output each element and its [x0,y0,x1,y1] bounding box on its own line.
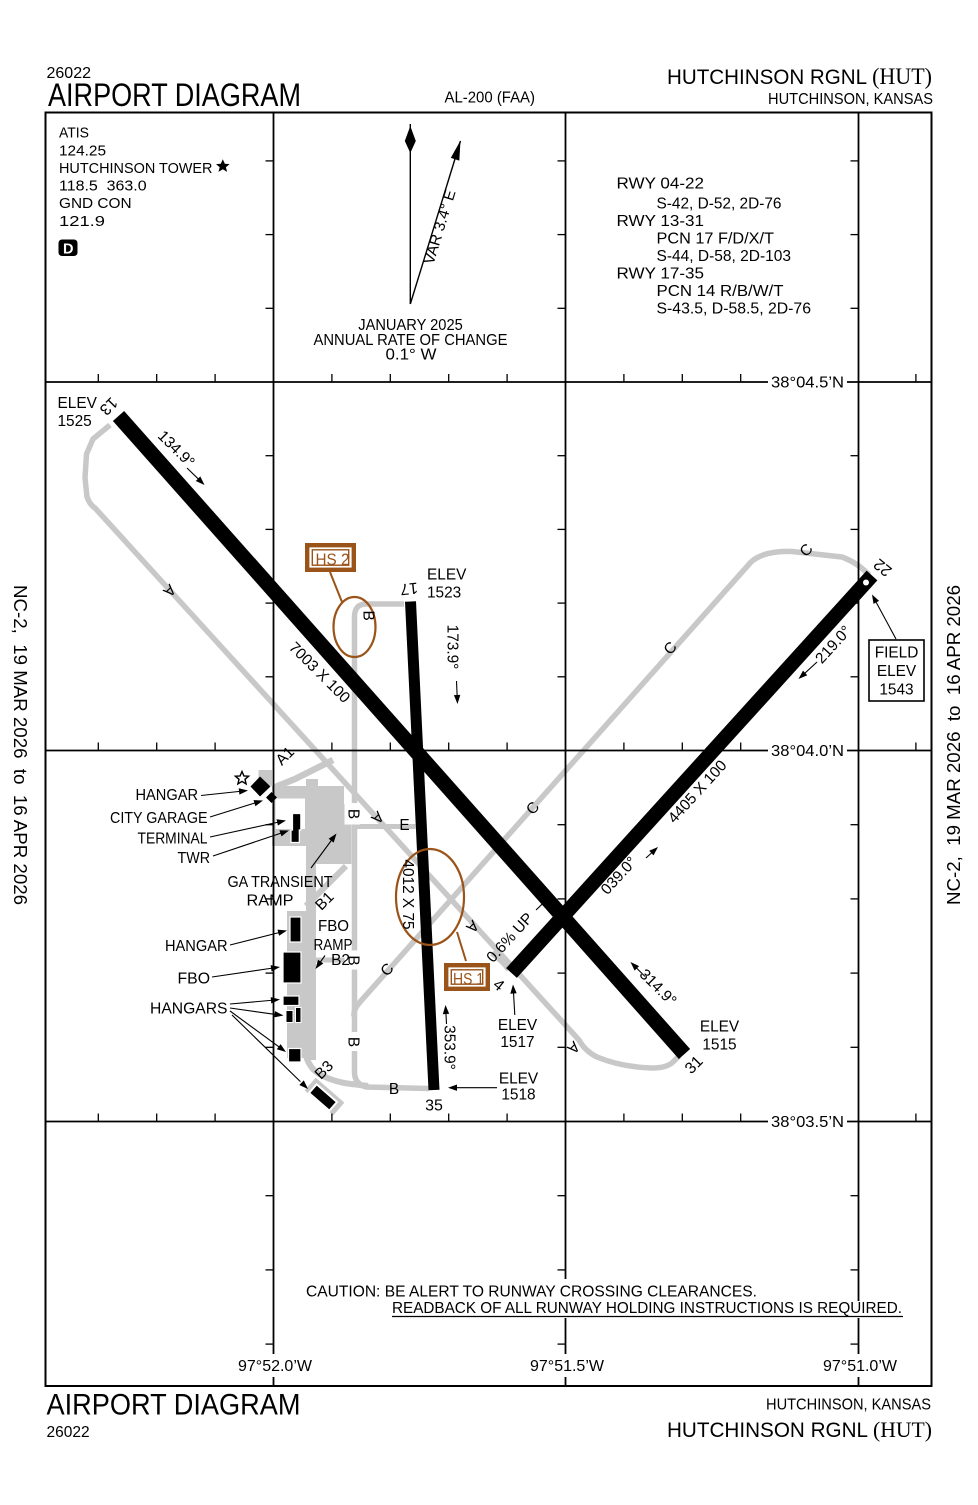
svg-text:S-42, D-52, 2D-76: S-42, D-52, 2D-76 [657,196,782,213]
svg-text:38°03.5’N: 38°03.5’N [771,1114,844,1131]
svg-text:B: B [389,1081,399,1098]
svg-text:HANGARS: HANGARS [150,1001,228,1018]
svg-text:124.25: 124.25 [59,142,106,159]
svg-text:97°52.0’W: 97°52.0’W [238,1358,312,1375]
svg-text:AIRPORT DIAGRAM: AIRPORT DIAGRAM [48,77,301,113]
svg-text:RAMP: RAMP [314,937,353,954]
svg-text:17: 17 [399,579,419,598]
svg-text:NC-2, 19 MAR 2026 to 16 APR: NC-2, 19 MAR 2026 to 16 APR 2026 [943,585,964,905]
svg-text:HUTCHINSON RGNL (HUT): HUTCHINSON RGNL (HUT) [667,64,932,89]
svg-text:1523: 1523 [427,585,461,602]
svg-text:B2: B2 [331,952,350,969]
svg-text:RWY 04-22: RWY 04-22 [617,176,705,193]
svg-text:HUTCHINSON, KANSAS: HUTCHINSON, KANSAS [766,1397,931,1414]
svg-text:121.9: 121.9 [59,213,105,230]
svg-text:ELEV: ELEV [58,395,98,412]
svg-text:TERMINAL: TERMINAL [138,831,208,848]
svg-text:1517: 1517 [500,1034,534,1051]
svg-text:GND CON: GND CON [59,195,132,212]
svg-text:READBACK OF ALL RUNWAY HOLDING: READBACK OF ALL RUNWAY HOLDING INSTRUCTI… [392,1300,902,1317]
svg-text:B: B [344,1037,361,1047]
svg-text:97°51.0’W: 97°51.0’W [823,1358,897,1375]
svg-text:B: B [344,809,361,819]
svg-text:CITY GARAGE: CITY GARAGE [110,810,208,827]
svg-text:0.1° W: 0.1° W [386,347,437,364]
svg-text:173.9°: 173.9° [444,625,461,670]
svg-text:HUTCHINSON TOWER: HUTCHINSON TOWER [59,160,213,177]
svg-text:1525: 1525 [58,413,92,430]
svg-text:PCN 14 R/B/W/T: PCN 14 R/B/W/T [657,283,785,300]
svg-text:ELEV: ELEV [427,567,467,584]
svg-text:35: 35 [425,1098,443,1115]
svg-text:S-43.5, D-58.5, 2D-76: S-43.5, D-58.5, 2D-76 [657,301,812,318]
svg-text:ELEV: ELEV [498,1017,538,1034]
svg-text:FBO: FBO [318,918,349,935]
svg-text:1515: 1515 [702,1037,736,1054]
svg-text:PCN 17 F/D/X/T: PCN 17 F/D/X/T [657,231,775,248]
svg-text:S-44, D-58, 2D-103: S-44, D-58, 2D-103 [657,248,792,265]
svg-text:HUTCHINSON, KANSAS: HUTCHINSON, KANSAS [768,91,933,108]
svg-text:ATIS: ATIS [59,125,89,142]
svg-text:AIRPORT DIAGRAM: AIRPORT DIAGRAM [47,1389,301,1422]
svg-text:E: E [399,817,409,834]
svg-text:FIELD: FIELD [875,645,919,662]
svg-text:TWR: TWR [178,850,211,867]
svg-text:CAUTION: BE ALERT TO RUNWAY CR: CAUTION: BE ALERT TO RUNWAY CROSSING CLE… [306,1284,757,1301]
svg-text:D: D [63,241,73,257]
svg-text:38°04.0’N: 38°04.0’N [771,743,844,760]
svg-text:ELEV: ELEV [877,663,917,680]
svg-text:ELEV: ELEV [499,1071,539,1088]
svg-text:1518: 1518 [501,1087,535,1104]
svg-text:HANGAR: HANGAR [136,787,199,804]
svg-text:HS 2: HS 2 [316,550,350,569]
svg-text:353.9°: 353.9° [440,1025,457,1070]
svg-text:FBO: FBO [178,971,211,988]
svg-text:118.5 363.0: 118.5 363.0 [59,178,147,195]
svg-text:RAMP: RAMP [247,893,294,910]
svg-text:AL-200 (FAA): AL-200 (FAA) [445,90,536,107]
svg-text:38°04.5’N: 38°04.5’N [771,375,844,392]
svg-text:RWY 13-31: RWY 13-31 [617,213,705,230]
svg-text:97°51.5’W: 97°51.5’W [530,1358,604,1375]
svg-text:HANGAR: HANGAR [165,938,228,955]
svg-text:1543: 1543 [879,682,913,699]
svg-text:HS 1: HS 1 [453,970,484,989]
svg-text:26022: 26022 [47,1424,90,1441]
svg-text:GA TRANSIENT: GA TRANSIENT [228,874,334,891]
svg-text:HUTCHINSON RGNL (HUT): HUTCHINSON RGNL (HUT) [667,1417,932,1442]
svg-text:4012 X 75: 4012 X 75 [399,859,416,929]
svg-text:NC-2, 19 MAR 2026 to 16 APR: NC-2, 19 MAR 2026 to 16 APR 2026 [10,585,31,905]
svg-text:B: B [359,610,376,620]
svg-text:RWY 17-35: RWY 17-35 [617,266,705,283]
svg-text:ELEV: ELEV [700,1019,740,1036]
